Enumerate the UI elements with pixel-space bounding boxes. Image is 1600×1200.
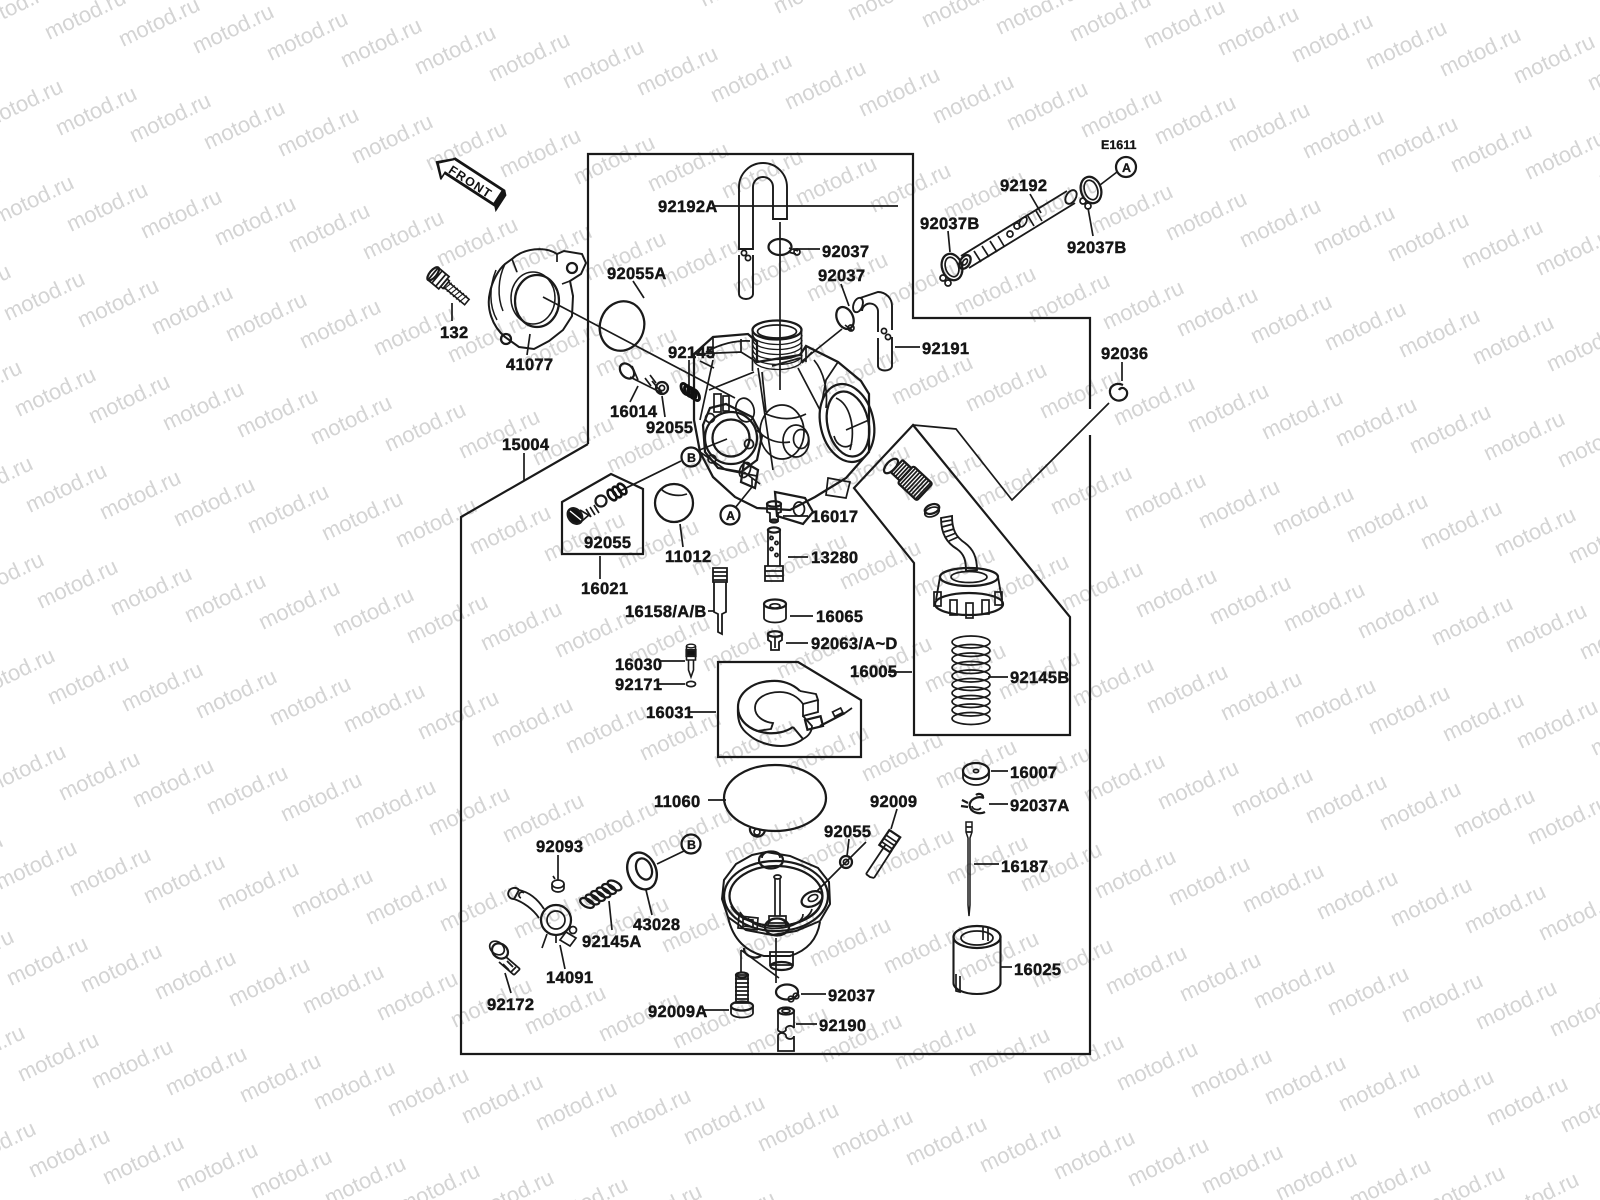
svg-text:16187: 16187 [1001,858,1048,876]
svg-text:16158/A/B: 16158/A/B [625,603,707,621]
svg-text:13280: 13280 [811,549,858,567]
svg-text:92190: 92190 [819,1017,866,1035]
svg-text:11012: 11012 [665,548,711,566]
svg-text:B: B [687,451,696,465]
svg-text:92055A: 92055A [607,265,667,283]
svg-text:92036: 92036 [1101,345,1148,363]
svg-text:92191: 92191 [922,340,969,358]
svg-text:16025: 16025 [1014,961,1061,979]
svg-text:132: 132 [440,324,468,342]
svg-text:92009: 92009 [870,793,917,811]
svg-text:92055: 92055 [584,534,631,552]
svg-text:92063/A~D: 92063/A~D [811,635,898,653]
svg-text:16021: 16021 [581,580,628,598]
svg-text:92055: 92055 [824,823,871,841]
svg-text:16031: 16031 [646,704,693,722]
svg-text:16065: 16065 [816,608,863,626]
svg-text:92037A: 92037A [1010,797,1070,815]
svg-text:92171: 92171 [615,676,662,694]
svg-text:14091: 14091 [546,969,593,987]
svg-text:15004: 15004 [502,436,550,454]
svg-text:92145B: 92145B [1010,669,1070,687]
svg-text:92192: 92192 [1000,177,1047,195]
svg-text:92037: 92037 [818,267,865,285]
svg-text:92145A: 92145A [582,933,642,951]
svg-text:16007: 16007 [1010,764,1057,782]
svg-text:A: A [726,509,735,523]
svg-text:92009A: 92009A [648,1003,708,1021]
svg-text:92037: 92037 [828,987,875,1005]
svg-text:B: B [687,838,696,852]
svg-text:E1611: E1611 [1101,138,1137,152]
svg-text:92172: 92172 [487,996,534,1014]
svg-text:16030: 16030 [615,656,662,674]
svg-text:92055: 92055 [646,419,693,437]
svg-text:92093: 92093 [536,838,583,856]
svg-text:41077: 41077 [506,356,553,374]
svg-text:92192A: 92192A [658,198,718,216]
svg-text:92037: 92037 [822,243,869,261]
svg-text:92037B: 92037B [920,215,980,233]
svg-text:A: A [1122,161,1131,175]
svg-text:92037B: 92037B [1067,239,1127,257]
svg-text:16017: 16017 [811,508,858,526]
svg-text:11060: 11060 [654,793,700,811]
svg-text:43028: 43028 [633,916,680,934]
